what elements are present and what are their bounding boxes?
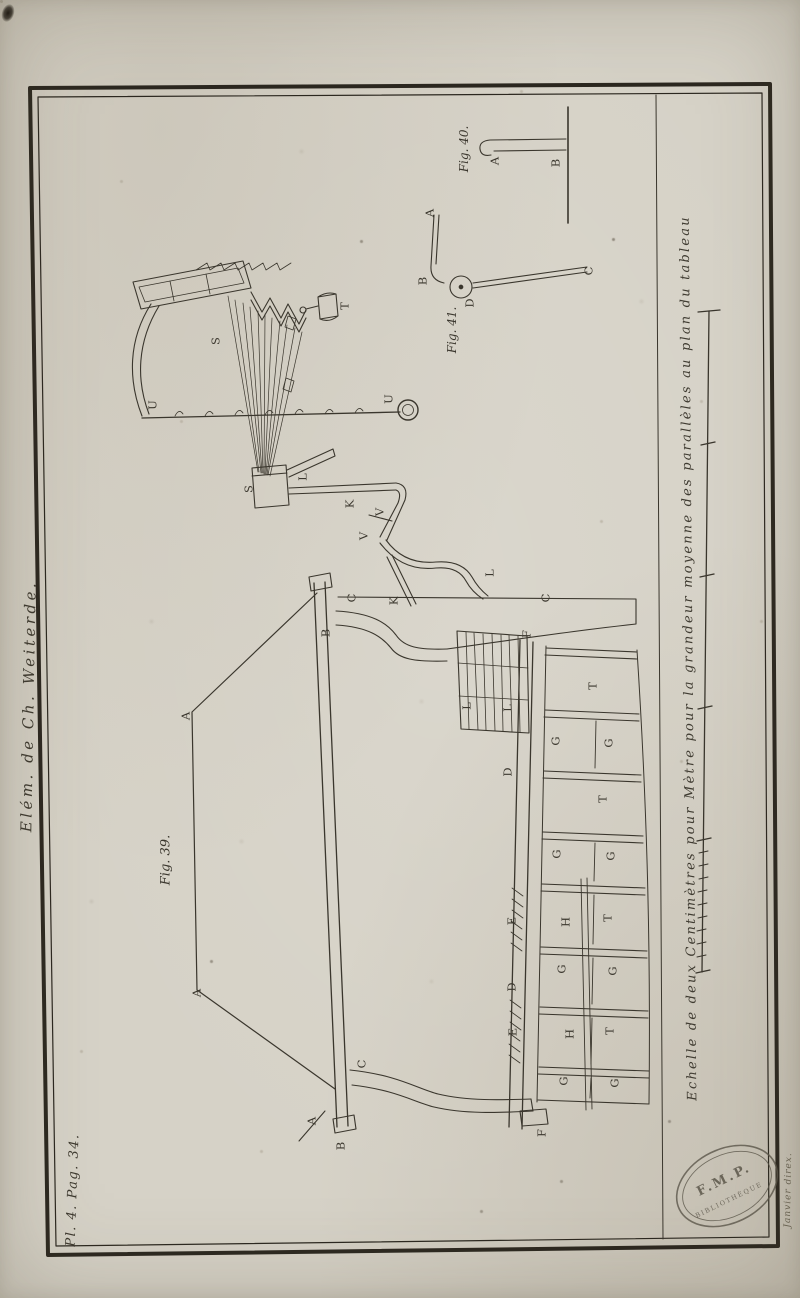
fig39-letter-a3: A [306, 1117, 318, 1125]
fig39-letter-g2: G [603, 738, 615, 747]
fig39-letter-g5: G [556, 964, 568, 973]
fig39-letter-l3: L [461, 702, 473, 710]
fig39-letter-c3: C [356, 1060, 368, 1069]
fig39-letter-s1: S [210, 337, 222, 345]
spine-title: Elém. de Ch. Weiterde. [19, 580, 38, 833]
plate-reference: Pl. 4. Pag. 34. [65, 1133, 82, 1247]
fig39-letter-a2: A [191, 989, 203, 997]
fig39-letter-t0: T [339, 302, 351, 310]
fig39-letter-u1: U [147, 400, 159, 410]
fig39-letter-g7: G [558, 1076, 570, 1085]
pedal-steps [537, 646, 649, 1110]
fig39-label: Fig. 39. [160, 835, 173, 885]
fig39-letter-l1: L [297, 473, 309, 481]
ring-handle [398, 400, 418, 420]
fig39-letter-b2: B [335, 1142, 347, 1150]
fig39-letter-g4: G [605, 851, 617, 860]
fig39-letter-t2: T [597, 795, 609, 803]
bellows-folds [251, 292, 306, 324]
engraver-signature: Janvier direx. [784, 1152, 794, 1228]
fig39-letter-d1: D [502, 767, 514, 776]
fig41-letter-a: A [424, 209, 436, 217]
fig39-letter-c1: C [346, 594, 358, 603]
fig39-letter-g6: G [607, 966, 619, 975]
fig39-letter-t1: T [587, 682, 599, 690]
fig41-drawing [431, 215, 587, 298]
inner-divider-rule [656, 95, 663, 1239]
fig39-letter-a1: A [180, 712, 192, 720]
fig41-label: Fig. 41. [446, 307, 458, 354]
plate-border [30, 84, 778, 1255]
fig39-letter-f2: F [536, 1129, 548, 1137]
engraving-drawing [0, 0, 800, 1298]
fig39-letter-v2: V [358, 532, 370, 540]
fig40-letter-a: A [489, 157, 501, 165]
fig39-letter-e1: E [506, 917, 518, 925]
fig39-letter-f1: F [521, 630, 533, 638]
fig39-letter-v1: V [374, 508, 386, 516]
fig39-letter-h1: H [560, 917, 572, 927]
fig39-letter-u2: U [383, 394, 395, 404]
fig41-letter-c: C [583, 267, 595, 276]
fig39-letter-g8: G [609, 1078, 621, 1087]
fig39-letter-k1: K [344, 500, 356, 509]
fig39-letter-b1: B [320, 629, 332, 637]
fig39-letter-t4: T [604, 1027, 616, 1035]
scale-bar [696, 310, 720, 973]
fig39-letter-g1: G [550, 736, 562, 745]
fig41-letter-d: D [464, 298, 476, 307]
fig40-label: Fig. 40. [458, 126, 470, 173]
weight-t [318, 293, 338, 320]
fig41-letter-b: B [417, 277, 429, 285]
fig39-letter-l2: L [484, 569, 496, 577]
fig40-letter-b: B [550, 159, 562, 167]
fig39-letter-k2: K [388, 597, 400, 606]
fig39-letter-e2: E [507, 1028, 519, 1036]
fig39-apparatus-drawing [132, 261, 488, 606]
scanned-plate-page: { "page": { "spine_text": "Elém. de Ch. … [0, 0, 800, 1298]
fig39-letter-d2: D [506, 982, 518, 991]
fig39-letter-c2: C [540, 594, 552, 603]
fig39-letter-h2: H [564, 1029, 576, 1039]
fig39-letter-s2: S [243, 485, 255, 493]
string-fan [228, 296, 302, 476]
fig39-letter-g3: G [551, 849, 563, 858]
fig39-table-drawing [192, 573, 649, 1141]
fig39-letter-l4: L [502, 704, 514, 712]
fig39-letter-t3: T [602, 914, 614, 922]
